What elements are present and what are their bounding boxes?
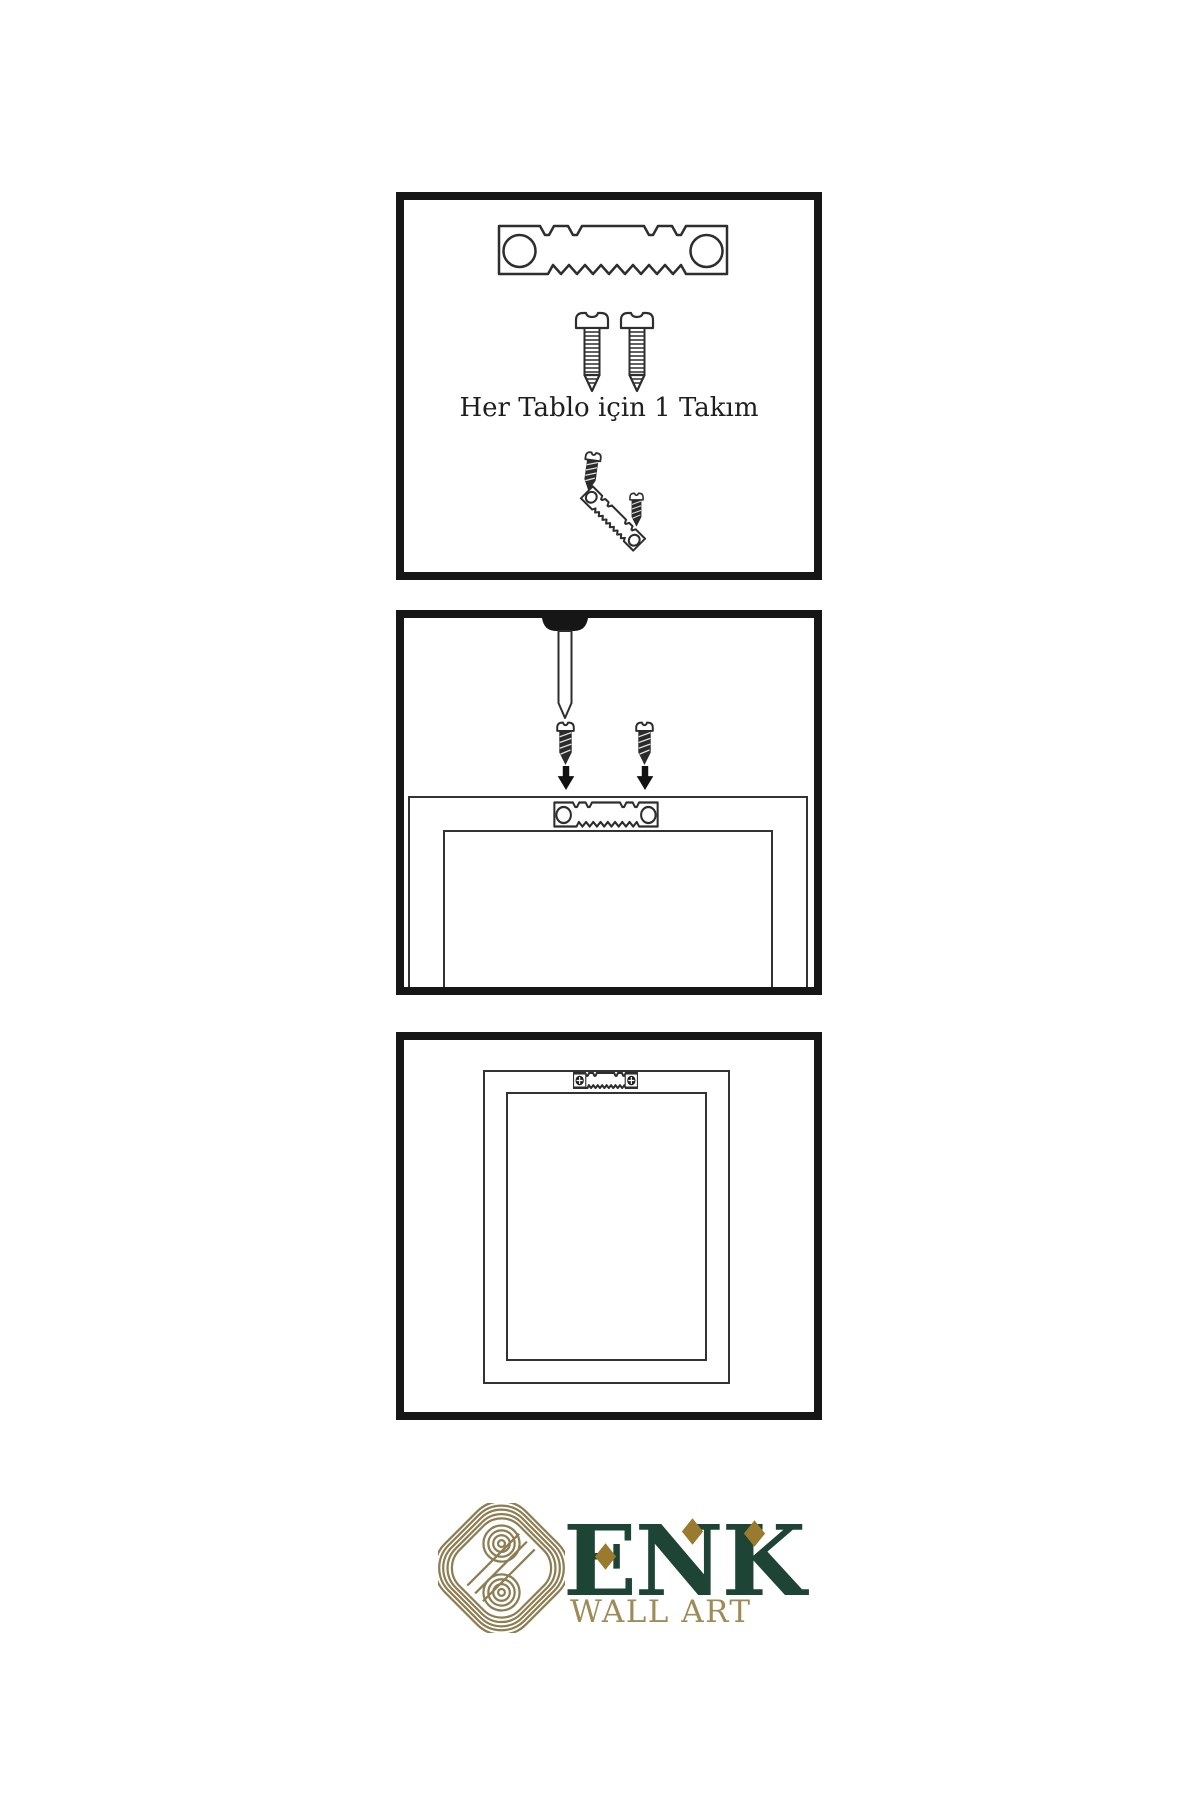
kit-caption: Her Tablo için 1 Takım [404, 393, 814, 423]
screw-head-icon [574, 1074, 586, 1087]
instruction-sheet: Her Tablo için 1 Takım [0, 0, 1200, 1800]
dark-screw-icon [632, 721, 657, 769]
dark-screw-icon [577, 450, 605, 497]
screw-icon [573, 310, 611, 394]
arrow-down-icon [636, 766, 654, 790]
knot-logo-icon [438, 1503, 565, 1633]
brand-tagline: WALL ART [570, 1597, 752, 1628]
frame-back-inner-outline [443, 830, 773, 987]
sawtooth-hanger-icon [553, 801, 659, 828]
step-panel-wall-mounting [396, 610, 822, 995]
step-panel-hardware-kit: Her Tablo için 1 Takım [396, 192, 822, 580]
arrow-down-icon [557, 766, 575, 790]
mounted-sawtooth-hanger-icon [573, 1072, 638, 1089]
screw-icon [618, 310, 656, 394]
sawtooth-hanger-icon [496, 223, 730, 277]
dark-screw-icon [553, 721, 578, 769]
step-panel-hung-frame [396, 1032, 822, 1420]
nail-icon [542, 618, 588, 722]
frame-back-inner-outline [506, 1092, 707, 1361]
screw-head-icon [625, 1074, 637, 1087]
